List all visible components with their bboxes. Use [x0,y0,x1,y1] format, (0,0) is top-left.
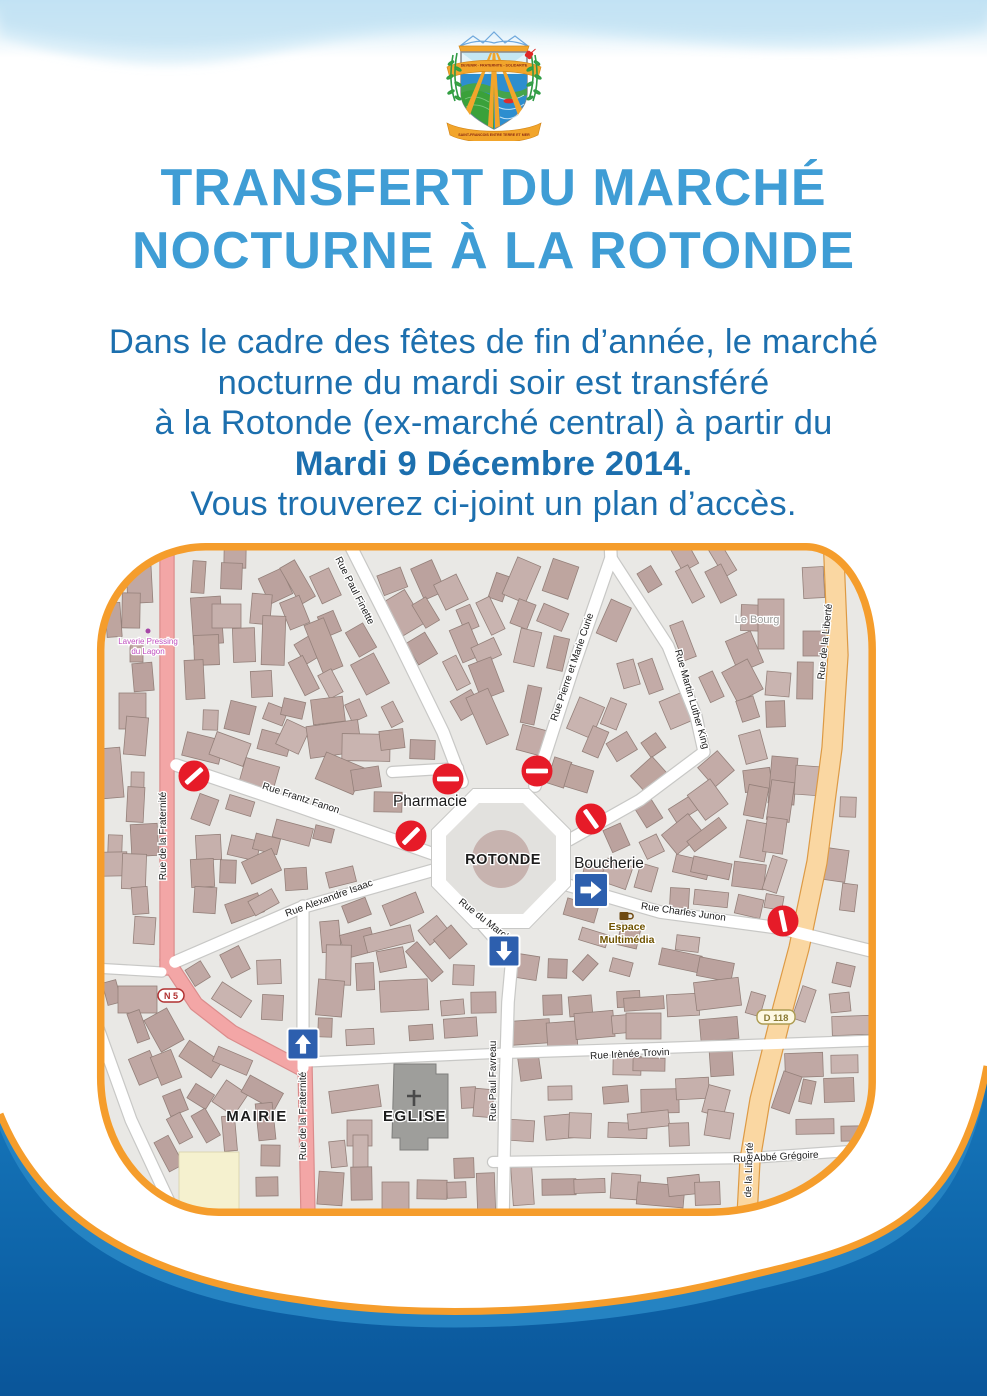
svg-text:de la Liberté: de la Liberté [743,1142,756,1198]
svg-text:N 5: N 5 [164,991,178,1001]
svg-text:Pharmacie: Pharmacie [393,793,467,810]
svg-text:Multimédia: Multimédia [600,934,655,946]
svg-text:Rue Paul Favreau: Rue Paul Favreau [488,1041,499,1122]
svg-text:Boucherie: Boucherie [574,855,644,872]
svg-text:MAIRIE: MAIRIE [226,1108,288,1125]
svg-text:Rue de la Fraternité: Rue de la Fraternité [298,1071,309,1160]
svg-text:EGLISE: EGLISE [383,1108,447,1125]
svg-text:Espace: Espace [609,921,646,933]
svg-text:du Lagon: du Lagon [131,647,164,656]
svg-text:Le Bourg: Le Bourg [735,614,780,626]
svg-text:ROTONDE: ROTONDE [465,852,541,868]
svg-text:Rue de la Fraternité: Rue de la Fraternité [158,791,169,880]
svg-text:Laverie Pressing: Laverie Pressing [118,637,178,646]
svg-text:D 118: D 118 [764,1013,789,1024]
